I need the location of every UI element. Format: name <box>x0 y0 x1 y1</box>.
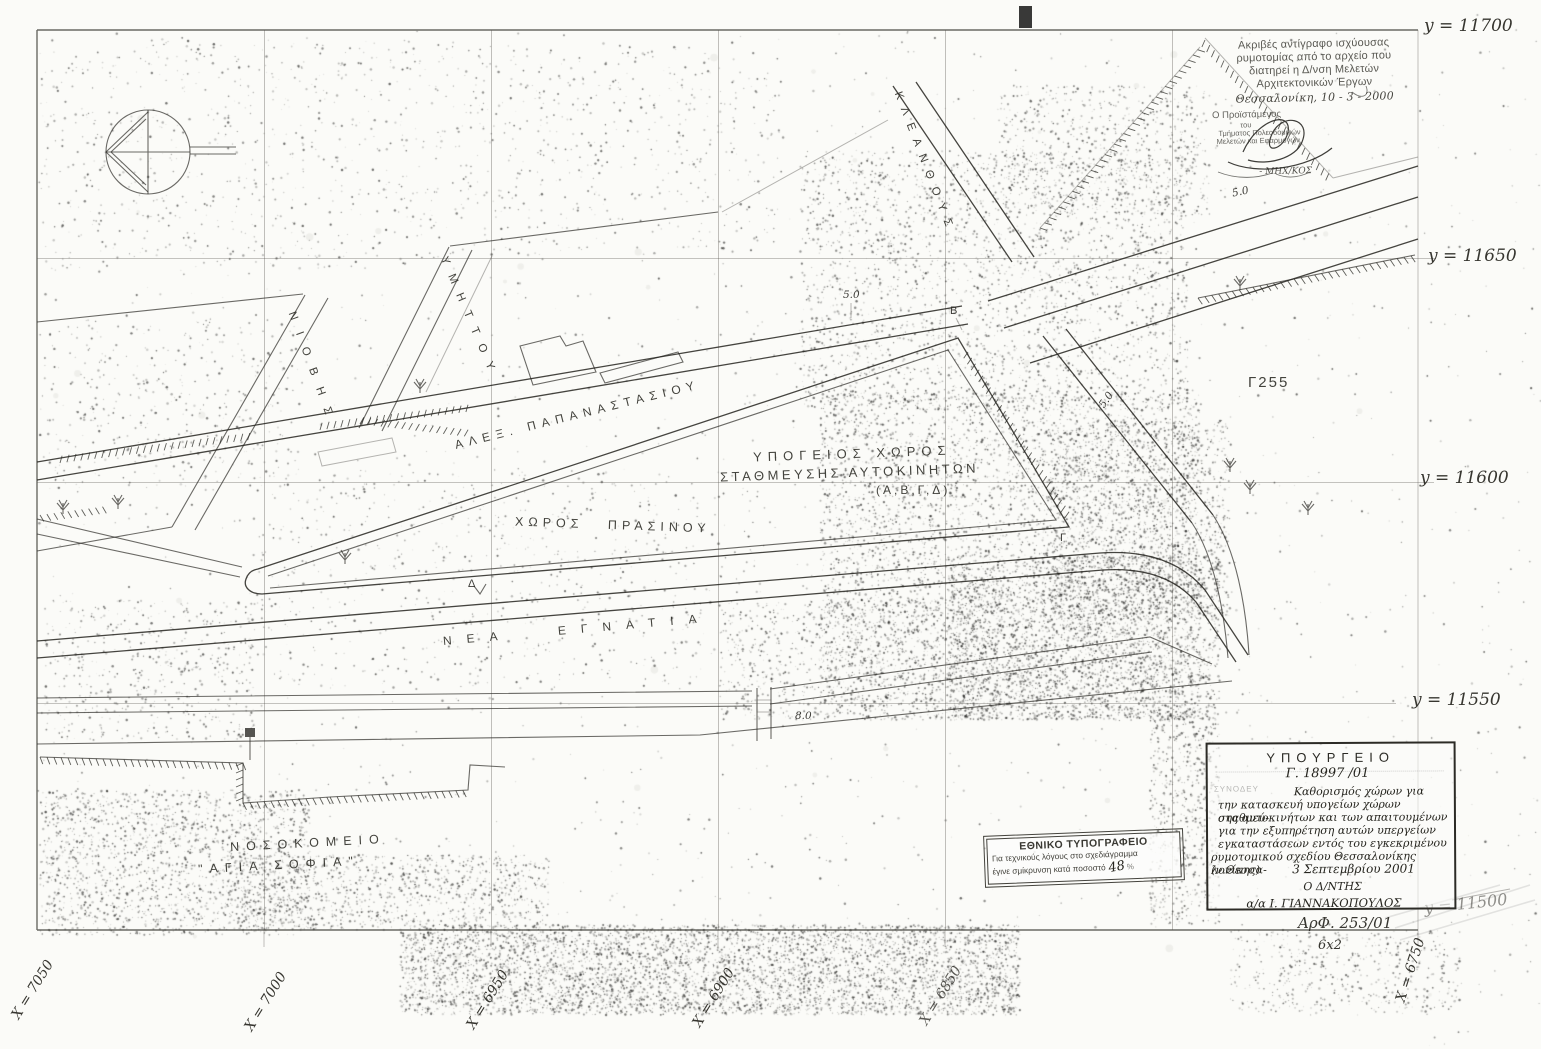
stamp-ministry-body7: λονίκης) <box>1211 863 1260 876</box>
stamp-printing-line2: έγινε σμίκρυνση κατά ποσοστό <box>992 862 1106 876</box>
road-papanastasiou <box>37 306 968 577</box>
stamp-printing-percent-value: 48 <box>1107 858 1126 876</box>
stamp-ministry-scale-note: 6x2 <box>1318 938 1342 953</box>
stamp-archive-signer-title: - ΜΗΧ/ΚΟΣ <box>1259 166 1312 177</box>
stamp-ministry-body4: για την εξυπηρέτηση αυτών υπεργείων <box>1218 823 1436 837</box>
label-parking-line3: (Α,Β,Γ,Δ) <box>876 483 950 497</box>
point-label-b: Β <box>950 305 957 317</box>
stamp-archive-role4: Μελετών και Εφαρμογών <box>1217 135 1300 146</box>
dim-5.0-a: 5.0 <box>843 289 860 301</box>
stamp-ministry-title: ΥΠΟΥΡΓΕΙΟ <box>1208 749 1454 765</box>
stamp-ministry-body3: σης αυτοκινήτων και των απαιτουμένων <box>1218 810 1448 824</box>
stamp-national-printing-office: ΕΘΝΙΚΟ ΤΥΠΟΓΡΑΦΕΙΟ Για τεχνικούς λόγους … <box>986 831 1182 884</box>
stamp-ministry-faint-left: ΣΥΝΟΔΕΥ <box>1214 784 1259 793</box>
dim-8.0: 8.0 <box>795 710 812 722</box>
label-block-id: Γ255 <box>1248 374 1289 391</box>
road-nea-egnatia <box>37 552 1248 744</box>
stamp-printing-percent-sign: % <box>1127 862 1134 871</box>
stamp-archive-date: Θεσσαλονίκη, 10 - 3 - 2000 <box>1192 88 1438 106</box>
grid-label-y11700: y = 11700 <box>1424 16 1513 36</box>
grid-label-y11600: y = 11600 <box>1420 468 1509 488</box>
stamp-ministry-date: 3 Σεπτεμβρίου 2001 <box>1292 862 1415 877</box>
stamp-ministry-protocol: Γ. 18997 /01 <box>1286 766 1370 781</box>
point-label-g: Γ <box>1060 532 1066 544</box>
stamp-ministry-director: Ο Δ/ΝΤΗΣ <box>1303 880 1362 893</box>
stamp-ministry-decision: ΥΠΟΥΡΓΕΙΟ Γ. 18997 /01 ΣΥΝΟΔΕΥ Καθορισμό… <box>1206 741 1457 910</box>
stamp-archive-certification: Ακριβές αντίγραφο ισχύουσας ρυμοτομίας α… <box>1190 33 1439 190</box>
grid-label-y11650: y = 11650 <box>1428 246 1517 266</box>
stamp-ministry-body5: εγκαταστάσεων εντός του εγκεκριμένου <box>1218 836 1447 850</box>
point-label-d: Δ <box>468 578 475 590</box>
upper-left-blocks <box>37 120 888 551</box>
scanned-map-sheet: y = 11700 y = 11650 y = 11600 y = 11550 … <box>0 0 1541 1049</box>
stamp-ministry-body1: Καθορισμός χώρων για <box>1294 785 1424 799</box>
stamp-archive-role1: Ο Προϊστάμενος <box>1212 109 1281 121</box>
stamp-ministry-signed-by: α/α Ι. ΓΙΑΝΝΑΚΟΠΟΥΛΟΣ <box>1246 896 1401 911</box>
north-arrow-icon <box>106 110 236 194</box>
grid-label-y11550: y = 11550 <box>1412 690 1501 710</box>
stamp-ministry-ref-number: ΑρΦ. 253/01 <box>1298 914 1392 932</box>
